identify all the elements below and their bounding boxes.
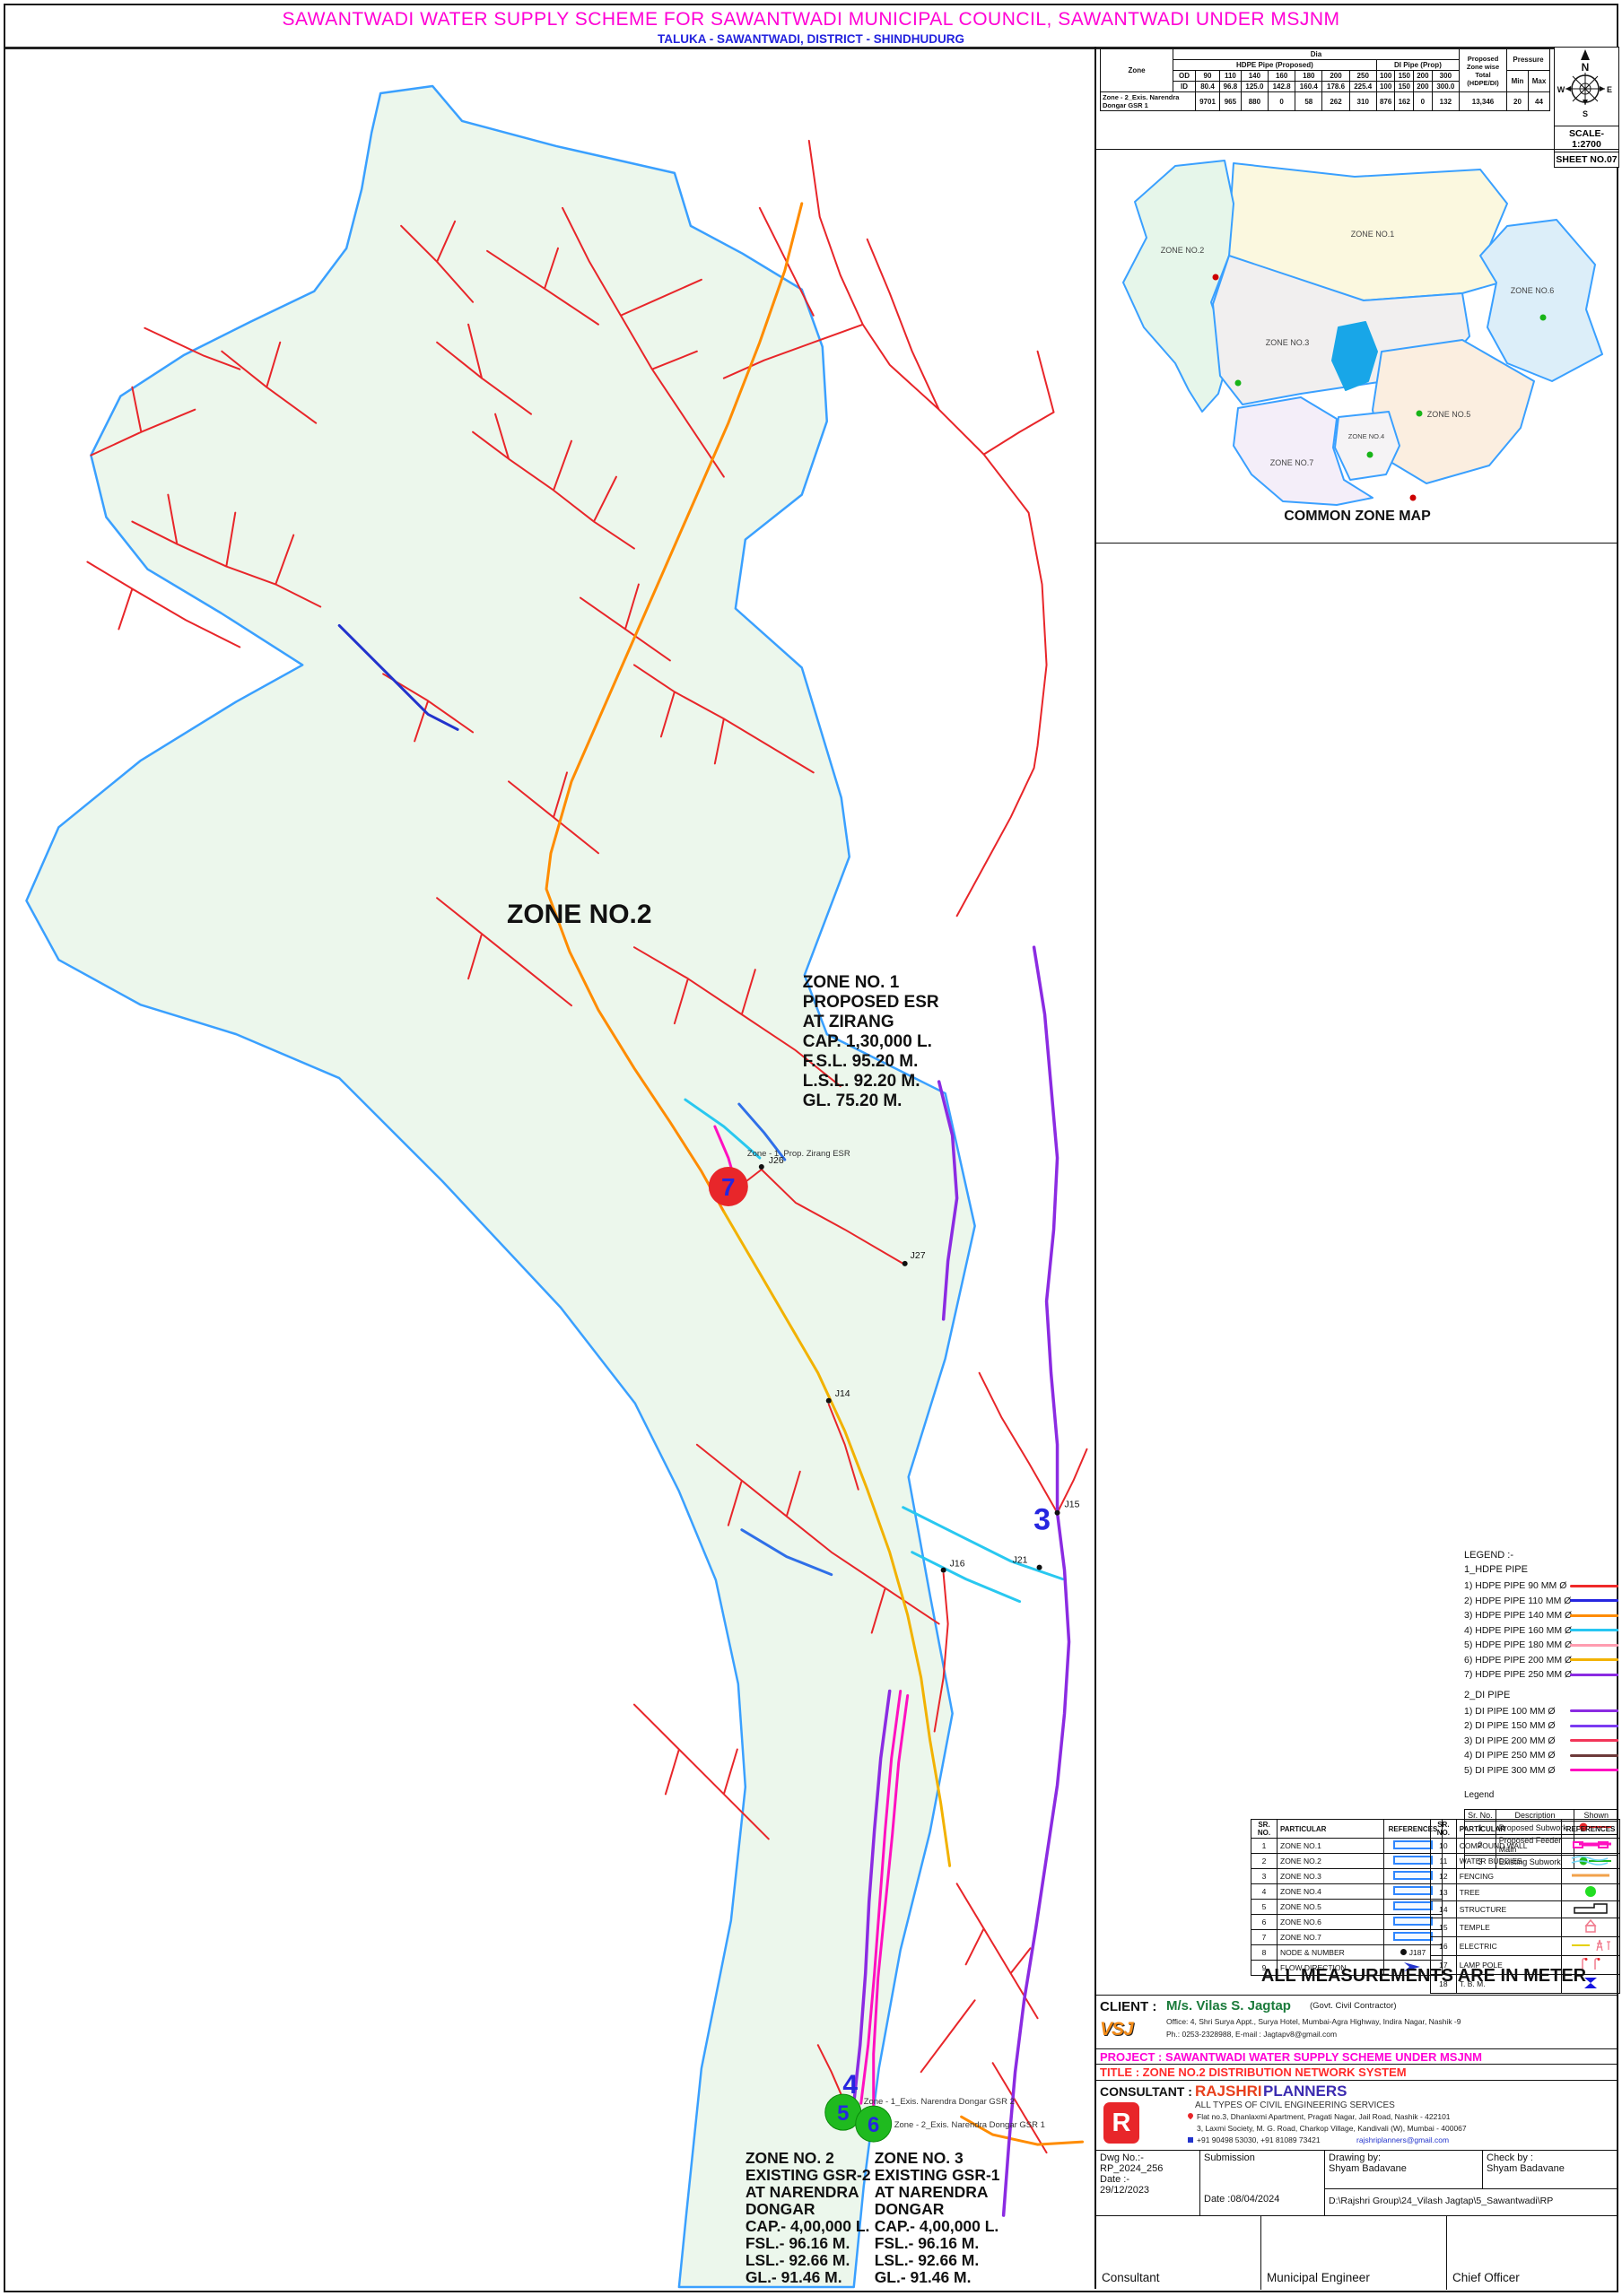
phone-icon	[1188, 2137, 1193, 2143]
svg-text:ZONE NO.5: ZONE NO.5	[1427, 410, 1471, 419]
project-row: PROJECT : SAWANTWADI WATER SUPPLY SCHEME…	[1096, 2048, 1618, 2065]
drawing-by-label: Drawing by:	[1329, 2152, 1478, 2163]
svg-text:ZONE NO.1: ZONE NO.1	[1351, 230, 1395, 239]
pipe-color-swatch	[1570, 1585, 1618, 1587]
length-value: 132	[1432, 92, 1459, 111]
drawing-by-cell: Drawing by: Shyam Badavane	[1324, 2151, 1482, 2188]
zone-boundary-symbol	[1392, 1932, 1434, 1941]
svg-text:J21: J21	[1013, 1556, 1028, 1566]
dwg-no-label: Dwg No.:-	[1100, 2152, 1196, 2163]
network-map: 7 5 6 4 3 J14 J15 J16 J21 J26 J27 Zone -…	[5, 47, 1094, 2289]
client-label: CLIENT :	[1100, 1999, 1156, 2014]
fencing-symbol	[1570, 1872, 1611, 1879]
temple-symbol	[1583, 1919, 1599, 1934]
dwg-no-value: RP_2024_256	[1100, 2163, 1196, 2174]
svg-text:J16: J16	[950, 1560, 965, 1570]
id-value: 225.4	[1349, 82, 1376, 92]
engineer-sign-label: Municipal Engineer	[1267, 2271, 1370, 2284]
legend-item: 2) HDPE PIPE 110 MM Ø	[1464, 1594, 1618, 1609]
svg-text:GL.- 91.46 M.: GL.- 91.46 M.	[875, 2268, 972, 2286]
officer-sign-label: Chief Officer	[1452, 2271, 1520, 2284]
tree-symbol	[1583, 1885, 1598, 1898]
zone-boundary-symbol	[1392, 1917, 1434, 1926]
svg-text:CAP. 1,30,000 L.: CAP. 1,30,000 L.	[803, 1032, 932, 1051]
ref-row: 5ZONE NO.5	[1251, 1900, 1443, 1915]
inset-zone2	[1123, 161, 1234, 412]
submission-label: Submission	[1204, 2152, 1321, 2163]
id-label: ID	[1173, 82, 1196, 92]
od-value: 140	[1241, 71, 1268, 82]
ref-row: 16ELECTRIC	[1431, 1937, 1620, 1956]
svg-text:ZONE NO.3: ZONE NO.3	[1266, 338, 1310, 347]
pipe-color-swatch	[1570, 1769, 1618, 1771]
ref-row: 3ZONE NO.3	[1251, 1869, 1443, 1884]
vsj-logo: VSJ	[1100, 2019, 1133, 2040]
zone-boundary-symbol	[1392, 1840, 1434, 1849]
svg-text:PROPOSED ESR: PROPOSED ESR	[803, 993, 939, 1012]
zone-boundary-symbol	[1392, 1901, 1434, 1910]
svg-text:ZONE NO. 2: ZONE NO. 2	[746, 2149, 834, 2167]
svg-text:DONGAR: DONGAR	[875, 2200, 945, 2218]
min-label: Min	[1507, 71, 1529, 92]
legend-item: 6) HDPE PIPE 200 MM Ø	[1464, 1653, 1618, 1668]
od-value: 250	[1349, 71, 1376, 82]
svg-text:Zone - 1_Prop. Zirang ESR: Zone - 1_Prop. Zirang ESR	[747, 1149, 850, 1159]
references-table-left: SR. NO. PARTICULAR REFERENCES 1ZONE NO.1…	[1251, 1819, 1443, 1976]
svg-text:F.S.L. 95.20 M.: F.S.L. 95.20 M.	[803, 1052, 919, 1071]
ref-row: 7ZONE NO.7	[1251, 1930, 1443, 1945]
zone2-network-svg: 7 5 6 4 3 J14 J15 J16 J21 J26 J27 Zone -…	[5, 47, 1094, 2289]
pipe-color-swatch	[1570, 1644, 1618, 1647]
common-zone-map: ZONE NO.1 ZONE NO.2 ZONE NO.3 ZONE NO.4 …	[1096, 149, 1618, 544]
date-label: Date :-	[1100, 2174, 1196, 2185]
inset-caption: COMMON ZONE MAP	[1096, 509, 1618, 525]
legend-table-title: Legend	[1464, 1790, 1618, 1800]
legend-item: 4) DI PIPE 250 MM Ø	[1464, 1748, 1618, 1763]
svg-text:N: N	[1582, 61, 1590, 74]
compass-rose-icon: N E W S	[1555, 48, 1616, 121]
rajshri-logo: R	[1103, 2102, 1139, 2144]
right-panel: Zone Dia Proposed Zone wise Total (HDPE/…	[1094, 47, 1620, 2289]
svg-text:LSL.- 92.66 M.: LSL.- 92.66 M.	[746, 2251, 850, 2269]
pipe-color-swatch	[1570, 1754, 1618, 1757]
id-value: 96.8	[1220, 82, 1242, 92]
date-value: 29/12/2023	[1100, 2185, 1196, 2196]
zone-boundary-symbol	[1392, 1871, 1434, 1880]
drawing-by-value: Shyam Badavane	[1329, 2163, 1478, 2174]
client-name: M/s. Vilas S. Jagtap	[1166, 1998, 1291, 2013]
ref-row: 11WATER BUDDIES	[1431, 1854, 1620, 1869]
od-value: 200	[1322, 71, 1349, 82]
zone-header: Zone	[1101, 49, 1173, 92]
file-path-cell: D:\Rajshri Group\24_Vilash Jagtap\5_Sawa…	[1324, 2188, 1618, 2216]
consultant-name-2: PLANNERS	[1263, 2083, 1347, 2100]
ref-row: 14STRUCTURE	[1431, 1901, 1620, 1918]
ref-row: 6ZONE NO.6	[1251, 1915, 1443, 1930]
svg-text:FSL.- 96.16 M.: FSL.- 96.16 M.	[746, 2234, 850, 2252]
consultant-addr2: 3, Laxmi Society, M. G. Road, Charkop Vi…	[1197, 2124, 1467, 2133]
svg-text:L.S.L. 92.20 M.: L.S.L. 92.20 M.	[803, 1072, 920, 1091]
submission-cell: Submission Date :08/04/2024	[1199, 2151, 1324, 2216]
od-value: 110	[1220, 71, 1242, 82]
svg-text:J27: J27	[911, 1251, 926, 1261]
electric-symbol	[1570, 1938, 1611, 1952]
max-value: 44	[1529, 92, 1550, 111]
signature-row: Consultant Municipal Engineer Chief Offi…	[1096, 2215, 1618, 2290]
ref-row: 10COMPOUND WALL	[1431, 1839, 1620, 1854]
drawing-subtitle: TALUKA - SAWANTWADI, DISTRICT - SHINDHUD…	[5, 32, 1617, 46]
client-suffix: (Govt. Civil Contractor)	[1310, 2001, 1397, 2011]
consultant-row: CONSULTANT : RAJSHRI PLANNERS R ALL TYPE…	[1096, 2080, 1618, 2151]
legend-item: 4) HDPE PIPE 160 MM Ø	[1464, 1623, 1618, 1639]
svg-text:ZONE NO.7: ZONE NO.7	[1270, 458, 1314, 467]
svg-text:ZONE NO.4: ZONE NO.4	[1348, 432, 1384, 440]
length-value: 876	[1376, 92, 1395, 111]
id-value: 100	[1376, 82, 1395, 92]
sheet-title-row: TITLE : ZONE NO.2 DISTRIBUTION NETWORK S…	[1096, 2064, 1618, 2081]
total-header: Proposed Zone wise Total (HDPE/DI)	[1460, 49, 1507, 92]
consultant-phone: +91 90498 53030, +91 81089 73421	[1197, 2135, 1321, 2144]
od-label: OD	[1173, 71, 1196, 82]
id-value: 178.6	[1322, 82, 1349, 92]
svg-text:J14: J14	[835, 1389, 850, 1399]
length-value: 9701	[1196, 92, 1220, 111]
ref-row: 8NODE & NUMBERJ187	[1251, 1945, 1443, 1961]
compound-wall-symbol	[1570, 1840, 1611, 1849]
svg-text:AT NARENDRA: AT NARENDRA	[746, 2183, 859, 2201]
location-pin-icon	[1187, 2112, 1194, 2119]
id-value: 200	[1414, 82, 1433, 92]
svg-text:E: E	[1607, 85, 1612, 94]
officer-sign-cell: Chief Officer	[1446, 2216, 1619, 2290]
legend-item: 5) HDPE PIPE 180 MM Ø	[1464, 1638, 1618, 1653]
engineer-sign-cell: Municipal Engineer	[1260, 2216, 1447, 2290]
zone-boundary-symbol	[1392, 1886, 1434, 1895]
marker-3-label: 3	[1033, 1503, 1051, 1537]
client-phone: Ph.: 0253-2328988, E-mail : Jagtapv8@gma…	[1166, 2030, 1337, 2039]
length-value: 310	[1349, 92, 1376, 111]
drawing-sheet: SAWANTWADI WATER SUPPLY SCHEME FOR SAWAN…	[0, 0, 1622, 2296]
id-value: 125.0	[1241, 82, 1268, 92]
dia-header: Dia	[1173, 49, 1460, 60]
consultant-sign-label: Consultant	[1102, 2271, 1160, 2284]
marker-4-label: 4	[842, 2070, 858, 2100]
inset-zone4	[1335, 412, 1400, 480]
od-value: 160	[1269, 71, 1295, 82]
gsr1-annotation: ZONE NO. 3 EXISTING GSR-1 AT NARENDRA DO…	[875, 2149, 1000, 2286]
dwg-row: Dwg No.:- RP_2024_256 Date :- 29/12/2023…	[1096, 2150, 1618, 2216]
svg-text:ZONE NO. 1: ZONE NO. 1	[803, 973, 900, 992]
length-value: 262	[1322, 92, 1349, 111]
legend-item: 5) DI PIPE 300 MM Ø	[1464, 1763, 1618, 1779]
di-header: DI Pipe (Prop)	[1376, 60, 1459, 71]
id-value: 80.4	[1196, 82, 1220, 92]
marker-7-label: 7	[721, 1173, 736, 1201]
svg-text:EXISTING GSR-1: EXISTING GSR-1	[875, 2166, 1000, 2184]
svg-text:S: S	[1583, 109, 1588, 118]
svg-text:DONGAR: DONGAR	[746, 2200, 815, 2218]
check-by-value: Shyam Badavane	[1487, 2163, 1615, 2174]
svg-text:EXISTING GSR-2: EXISTING GSR-2	[746, 2166, 871, 2184]
legend-item: 1) HDPE PIPE 90 MM Ø	[1464, 1578, 1618, 1594]
measurement-note: ALL MEASUREMENTS ARE IN METER	[1231, 1966, 1617, 1987]
length-value: 0	[1414, 92, 1433, 111]
svg-text:AT ZIRANG: AT ZIRANG	[803, 1013, 894, 1031]
consultant-name-1: RAJSHRI	[1195, 2083, 1262, 2100]
svg-text:W: W	[1557, 85, 1565, 94]
od-value: 300	[1432, 71, 1459, 82]
pipe-color-swatch	[1570, 1629, 1618, 1631]
client-row: CLIENT : M/s. Vilas S. Jagtap (Govt. Civ…	[1096, 1995, 1618, 2049]
legend-item: 1) DI PIPE 100 MM Ø	[1464, 1704, 1618, 1719]
svg-text:Zone - 2_Exis. Narendra Dongar: Zone - 2_Exis. Narendra Dongar GSR 1	[894, 2120, 1045, 2130]
consultant-sign-cell: Consultant	[1096, 2216, 1260, 2290]
length-value: 58	[1295, 92, 1322, 111]
svg-text:GL. 75.20 M.: GL. 75.20 M.	[803, 1091, 903, 1110]
svg-text:CAP.- 4,00,000 L.: CAP.- 4,00,000 L.	[875, 2217, 999, 2235]
total-value: 13,346	[1460, 92, 1507, 111]
pipe-color-swatch	[1570, 1674, 1618, 1676]
common-zone-map-svg: ZONE NO.1 ZONE NO.2 ZONE NO.3 ZONE NO.4 …	[1103, 150, 1611, 509]
dwg-no-cell: Dwg No.:- RP_2024_256 Date :- 29/12/2023	[1096, 2151, 1199, 2216]
drawing-title: SAWANTWADI WATER SUPPLY SCHEME FOR SAWAN…	[5, 9, 1617, 30]
length-value: 0	[1269, 92, 1295, 111]
svg-text:CAP.- 4,00,000 L.: CAP.- 4,00,000 L.	[746, 2217, 870, 2235]
id-value: 150	[1395, 82, 1414, 92]
esr-annotation: ZONE NO. 1 PROPOSED ESR AT ZIRANG CAP. 1…	[803, 973, 939, 1110]
project-title: PROJECT : SAWANTWADI WATER SUPPLY SCHEME…	[1096, 2049, 1618, 2065]
length-value: 162	[1395, 92, 1414, 111]
ref-row: 4ZONE NO.4	[1251, 1884, 1443, 1900]
legend-heading: LEGEND :-	[1464, 1550, 1618, 1561]
ref-row: 12FENCING	[1431, 1869, 1620, 1884]
id-value: 160.4	[1295, 82, 1322, 92]
legend-item: 2) DI PIPE 150 MM Ø	[1464, 1718, 1618, 1734]
pipe-color-swatch	[1570, 1725, 1618, 1727]
inset-zone6	[1480, 220, 1602, 381]
od-value: 180	[1295, 71, 1322, 82]
di-heading: 2_DI PIPE	[1464, 1690, 1618, 1700]
od-value: 200	[1414, 71, 1433, 82]
od-value: 150	[1395, 71, 1414, 82]
svg-text:J15: J15	[1065, 1500, 1080, 1510]
length-value: 965	[1220, 92, 1242, 111]
id-value: 142.8	[1269, 82, 1295, 92]
check-by-cell: Check by : Shyam Badavane	[1482, 2151, 1618, 2188]
svg-text:FSL.- 96.16 M.: FSL.- 96.16 M.	[875, 2234, 980, 2252]
length-value: 880	[1241, 92, 1268, 111]
client-office: Office: 4, Shri Surya Appt., Surya Hotel…	[1166, 2017, 1461, 2026]
ref-row: 13TREE	[1431, 1884, 1620, 1901]
check-by-label: Check by :	[1487, 2152, 1615, 2163]
pipe-color-swatch	[1570, 1658, 1618, 1661]
hdpe-heading: 1_HDPE PIPE	[1464, 1564, 1618, 1575]
structure-symbol	[1573, 1902, 1609, 1915]
legend-item: 3) HDPE PIPE 140 MM Ø	[1464, 1608, 1618, 1623]
svg-text:LSL.- 92.66 M.: LSL.- 92.66 M.	[875, 2251, 980, 2269]
marker-6-label: 6	[868, 2113, 879, 2137]
svg-text:ZONE NO.2: ZONE NO.2	[1161, 246, 1205, 255]
svg-text:Zone - 1_Exis. Narendra Dongar: Zone - 1_Exis. Narendra Dongar GSR 2	[864, 2097, 1015, 2107]
ref-row: 2ZONE NO.2	[1251, 1854, 1443, 1869]
pipe-color-swatch	[1570, 1709, 1618, 1712]
consultant-email: rajshriplanners@gmail.com	[1356, 2135, 1449, 2144]
od-value: 90	[1196, 71, 1220, 82]
title-bar: SAWANTWADI WATER SUPPLY SCHEME FOR SAWAN…	[5, 5, 1617, 49]
marker-5-label: 5	[837, 2101, 849, 2126]
od-value: 100	[1376, 71, 1395, 82]
pipe-color-swatch	[1570, 1599, 1618, 1602]
id-value: 300.0	[1432, 82, 1459, 92]
sheet-title: TITLE : ZONE NO.2 DISTRIBUTION NETWORK S…	[1096, 2065, 1618, 2080]
consultant-label: CONSULTANT :	[1100, 2084, 1192, 2099]
node-number-sample: J187	[1409, 1948, 1426, 1957]
node-symbol	[1400, 1949, 1407, 1955]
pressure-header: Pressure	[1507, 49, 1550, 71]
consultant-addr1: Flat no.3, Dhanlaxmi Apartment, Pragati …	[1197, 2112, 1451, 2121]
max-label: Max	[1529, 71, 1550, 92]
min-value: 20	[1507, 92, 1529, 111]
pipe-color-swatch	[1570, 1739, 1618, 1742]
legend-item: 3) DI PIPE 200 MM Ø	[1464, 1734, 1618, 1749]
svg-text:AT NARENDRA: AT NARENDRA	[875, 2183, 989, 2201]
zone2-big-label: ZONE NO.2	[507, 900, 652, 929]
svg-text:ZONE NO.6: ZONE NO.6	[1511, 286, 1555, 295]
submission-date: Date :08/04/2024	[1204, 2194, 1321, 2205]
water-buddies-symbol	[1570, 1855, 1611, 1865]
legend-item: 7) HDPE PIPE 250 MM Ø	[1464, 1667, 1618, 1683]
consultant-tagline: ALL TYPES OF CIVIL ENGINEERING SERVICES	[1195, 2100, 1395, 2110]
pipe-color-swatch	[1570, 1614, 1618, 1617]
hdpe-header: HDPE Pipe (Proposed)	[1173, 60, 1377, 71]
zone2-boundary	[26, 86, 974, 2287]
svg-text:ZONE NO. 3: ZONE NO. 3	[875, 2149, 964, 2167]
ref-row: 15TEMPLE	[1431, 1918, 1620, 1937]
zone-boundary-symbol	[1392, 1856, 1434, 1865]
ref-row: 1ZONE NO.1	[1251, 1839, 1443, 1854]
scale-label: SCALE-1:2700	[1555, 126, 1618, 152]
pipe-dia-table: Zone Dia Proposed Zone wise Total (HDPE/…	[1100, 48, 1550, 111]
svg-text:GL.- 91.46 M.: GL.- 91.46 M.	[746, 2268, 842, 2286]
zone-row-label: Zone - 2_Exis. Narendra Dongar GSR 1	[1101, 92, 1196, 111]
